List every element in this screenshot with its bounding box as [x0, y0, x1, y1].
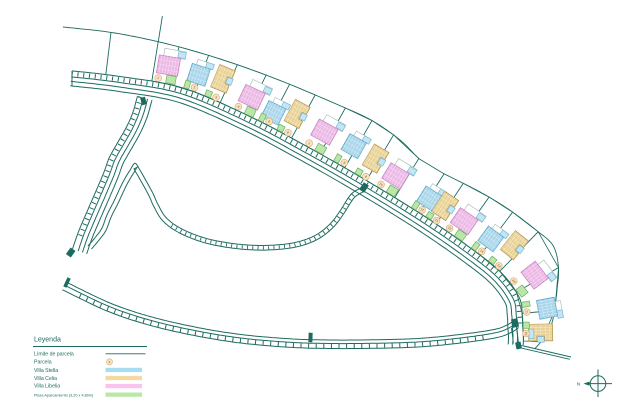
svg-text:Leyenda: Leyenda	[34, 337, 61, 344]
svg-text:Límite de parcela: Límite de parcela	[34, 352, 74, 358]
svg-text:Villa Stella: Villa Stella	[34, 368, 58, 374]
svg-text:N: N	[577, 381, 581, 387]
svg-text:Plaza Aparcamiento (3,20 x 4,8: Plaza Aparcamiento (3,20 x 4,80m)	[34, 393, 94, 397]
svg-text:Parcela: Parcela	[34, 360, 52, 366]
svg-text:18: 18	[524, 332, 528, 336]
svg-text:Villa Celia: Villa Celia	[34, 376, 57, 382]
svg-text:Villa Libelia: Villa Libelia	[34, 383, 60, 389]
